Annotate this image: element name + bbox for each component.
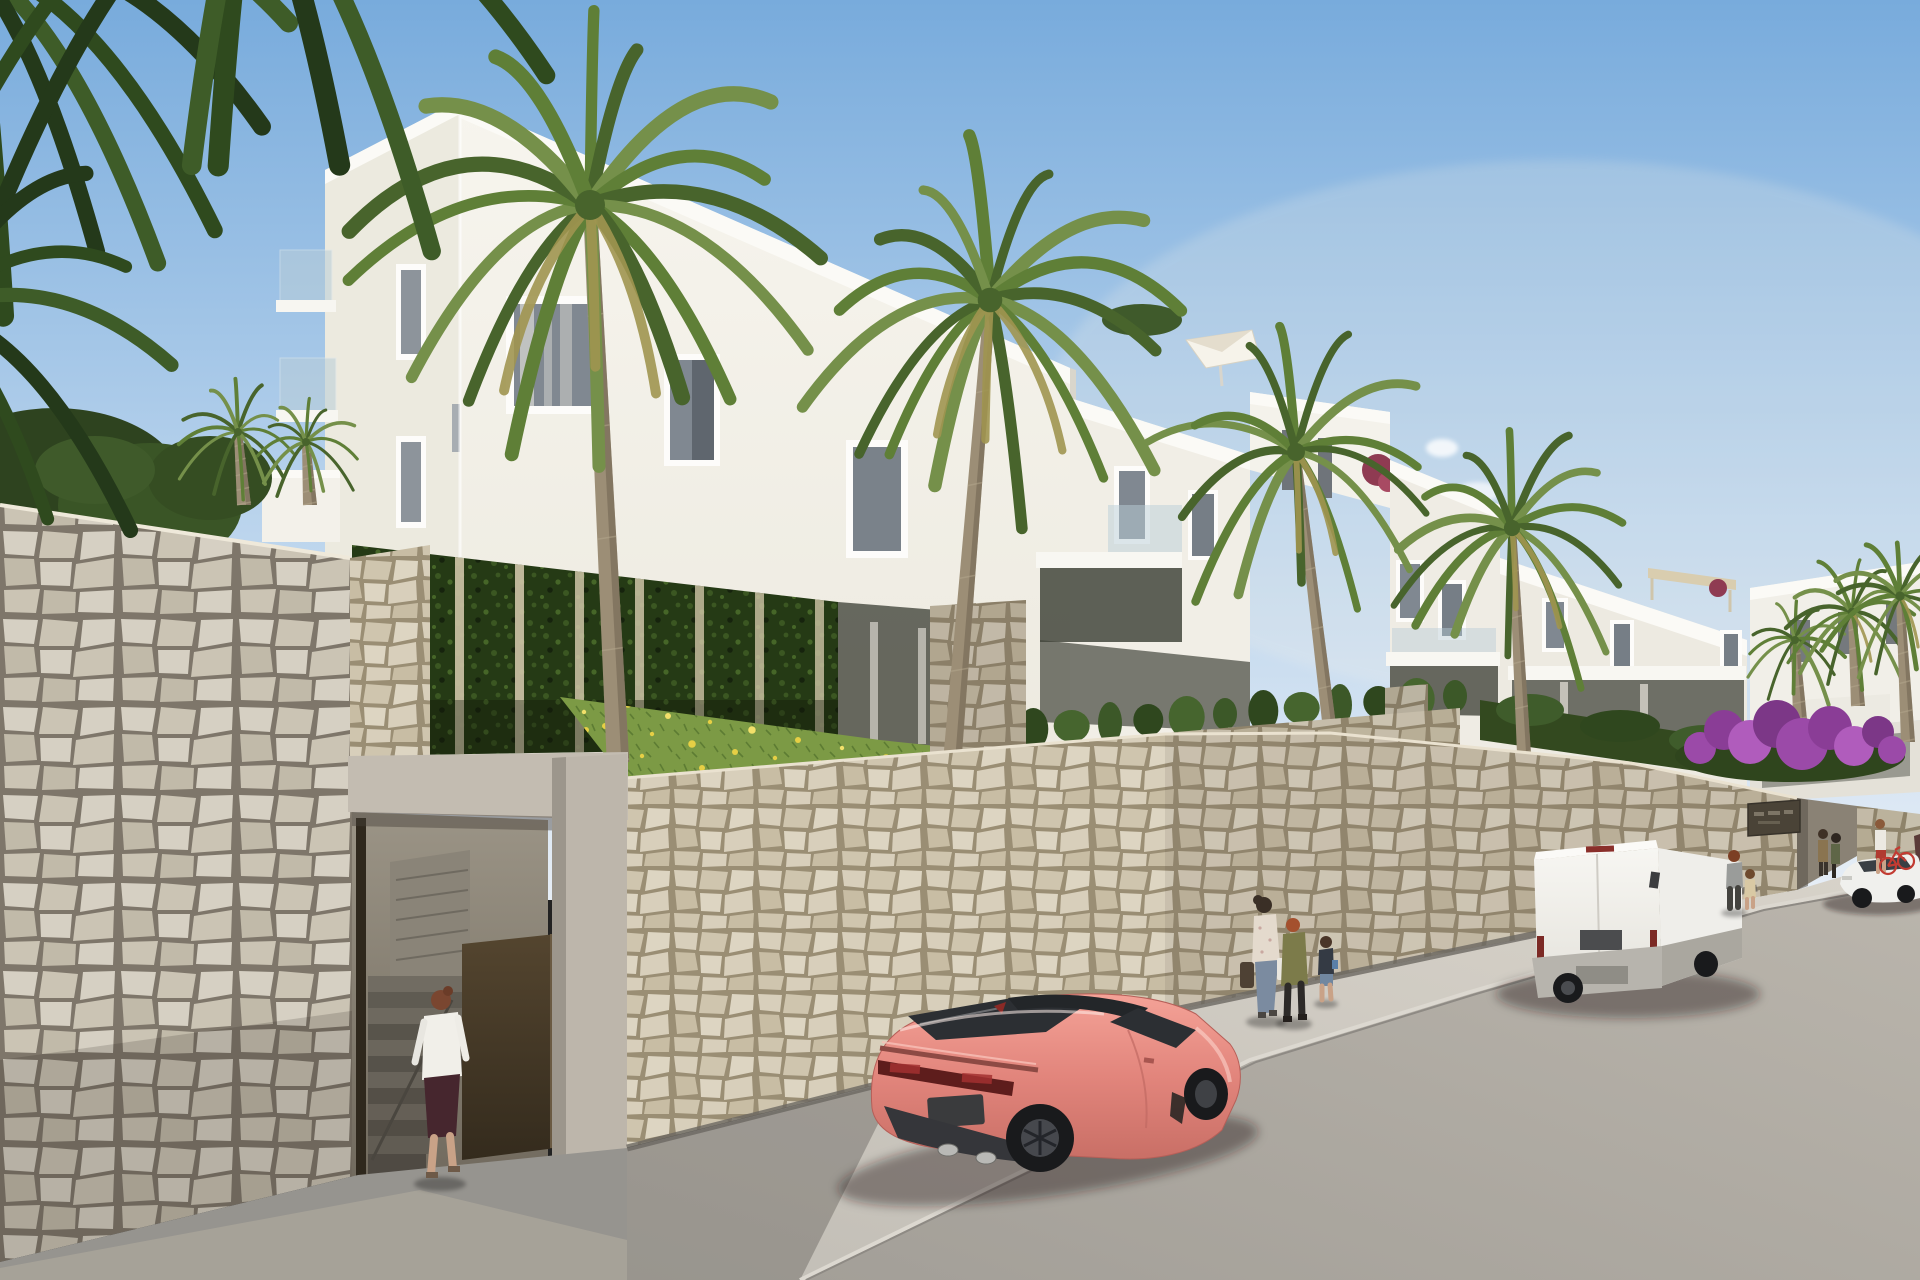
palm-frond-dry	[590, 205, 595, 367]
boot	[1283, 1016, 1292, 1022]
window-glass	[401, 442, 421, 522]
exhaust-tip	[938, 1144, 958, 1156]
flower	[732, 749, 738, 755]
palm-crown-core	[1895, 591, 1904, 600]
palm-crown-core	[1504, 520, 1520, 536]
window-tall	[846, 440, 908, 558]
gate-door	[462, 934, 556, 1160]
cypress-bush	[1054, 710, 1090, 742]
person-shadow	[414, 1177, 466, 1191]
van-brake-light	[1586, 846, 1614, 853]
white-shirt	[1875, 830, 1886, 850]
floral-dot	[1260, 950, 1263, 953]
person-head	[1728, 850, 1740, 862]
toy	[1332, 960, 1338, 969]
pencil-skirt	[424, 1074, 460, 1138]
flower	[748, 726, 756, 734]
palm-crown-core	[978, 288, 1003, 313]
person-head	[1320, 936, 1332, 948]
gate-frame-post	[356, 818, 366, 1200]
pier-shade-edge	[552, 757, 566, 1162]
shoe	[1258, 1012, 1266, 1018]
shrub-mass	[148, 436, 272, 520]
exhaust-tip	[976, 1152, 996, 1164]
floral-top	[1252, 914, 1280, 964]
render-canvas	[0, 0, 1920, 1280]
leg	[450, 1136, 453, 1168]
leg	[431, 1138, 434, 1174]
shoe	[448, 1166, 460, 1172]
van-bumper-step	[1576, 966, 1628, 984]
leg	[1330, 985, 1331, 999]
van-license-plate	[1580, 930, 1622, 950]
flower	[840, 746, 844, 750]
car-front-rim	[1195, 1080, 1217, 1108]
palm-crown-core	[1287, 443, 1305, 461]
van-wheel-hub	[1561, 981, 1575, 995]
person-head	[1818, 829, 1828, 839]
figure-body	[1818, 840, 1828, 862]
column	[918, 628, 926, 744]
hair-bun	[443, 986, 453, 996]
floral-dot	[1268, 938, 1271, 941]
palm-crown-core	[234, 428, 242, 436]
flower	[795, 737, 801, 743]
column	[870, 622, 878, 740]
olive-jacket	[1281, 932, 1308, 986]
person-head	[1831, 833, 1841, 843]
flower	[640, 754, 644, 758]
balcony-slab-B	[1036, 552, 1182, 568]
flower	[773, 756, 777, 760]
grey-shirt	[1726, 862, 1743, 889]
floral-dot	[1258, 926, 1261, 929]
entrance-sign	[1748, 800, 1800, 836]
flower	[582, 710, 586, 714]
palm-crown-core	[575, 190, 605, 220]
boot	[1298, 1014, 1307, 1020]
balcony-parapet	[262, 470, 340, 542]
balcony-parapet-cap	[262, 470, 340, 478]
figure-body	[1831, 844, 1840, 864]
palm-crown-core	[302, 438, 310, 446]
balcony-slab	[276, 300, 336, 312]
shoe	[426, 1172, 438, 1178]
shoe	[1269, 1010, 1277, 1016]
balcony-slab-D	[1508, 666, 1746, 680]
flower	[688, 740, 696, 748]
cypress-bush	[1133, 704, 1163, 736]
person-shadow	[1314, 1000, 1338, 1008]
hedge-blob	[1496, 694, 1564, 726]
glass-balustrade-C	[1392, 628, 1496, 654]
child-outfit	[1744, 879, 1756, 899]
person-head	[1875, 819, 1885, 829]
portal-return-wall	[350, 545, 430, 764]
child-top	[1318, 948, 1334, 975]
bougainvillea-bloom	[1878, 736, 1906, 764]
palm-frond-dry	[985, 300, 990, 440]
flower	[650, 732, 654, 736]
trouser-leg	[1301, 984, 1302, 1016]
balcony-recess-B	[1040, 568, 1182, 642]
glass-balustrade-B	[1108, 505, 1182, 553]
balcony-slab-C	[1386, 652, 1502, 666]
van-wheel	[1694, 951, 1718, 977]
hedge-blob	[1580, 710, 1660, 742]
window-glass	[401, 270, 421, 354]
cypress-bush	[1284, 692, 1320, 724]
handbag-dark	[1240, 962, 1254, 988]
flower	[708, 720, 712, 724]
window-D-glass	[1614, 624, 1630, 666]
curly-hair	[1253, 895, 1263, 905]
person-head	[1286, 918, 1300, 932]
flower	[665, 713, 671, 719]
sedan-headlight	[1842, 876, 1852, 880]
palm-frond-dry	[1296, 452, 1299, 551]
cypress-bush	[1213, 698, 1237, 730]
trouser-leg	[1287, 986, 1288, 1018]
stone-pier-shade	[930, 600, 1026, 770]
cloud	[1426, 439, 1458, 457]
palm-crown-core	[1791, 636, 1799, 644]
cypress-bush	[1443, 680, 1467, 712]
glass-balustrade	[280, 250, 332, 304]
person-shadow	[1721, 909, 1747, 917]
person-head	[1745, 869, 1755, 879]
van-taillight	[1537, 936, 1544, 960]
sedan-wheel	[1852, 888, 1872, 908]
palm-frond	[1794, 640, 1796, 694]
window-D-glass	[1724, 634, 1738, 670]
sedan-wheel	[1897, 885, 1915, 903]
